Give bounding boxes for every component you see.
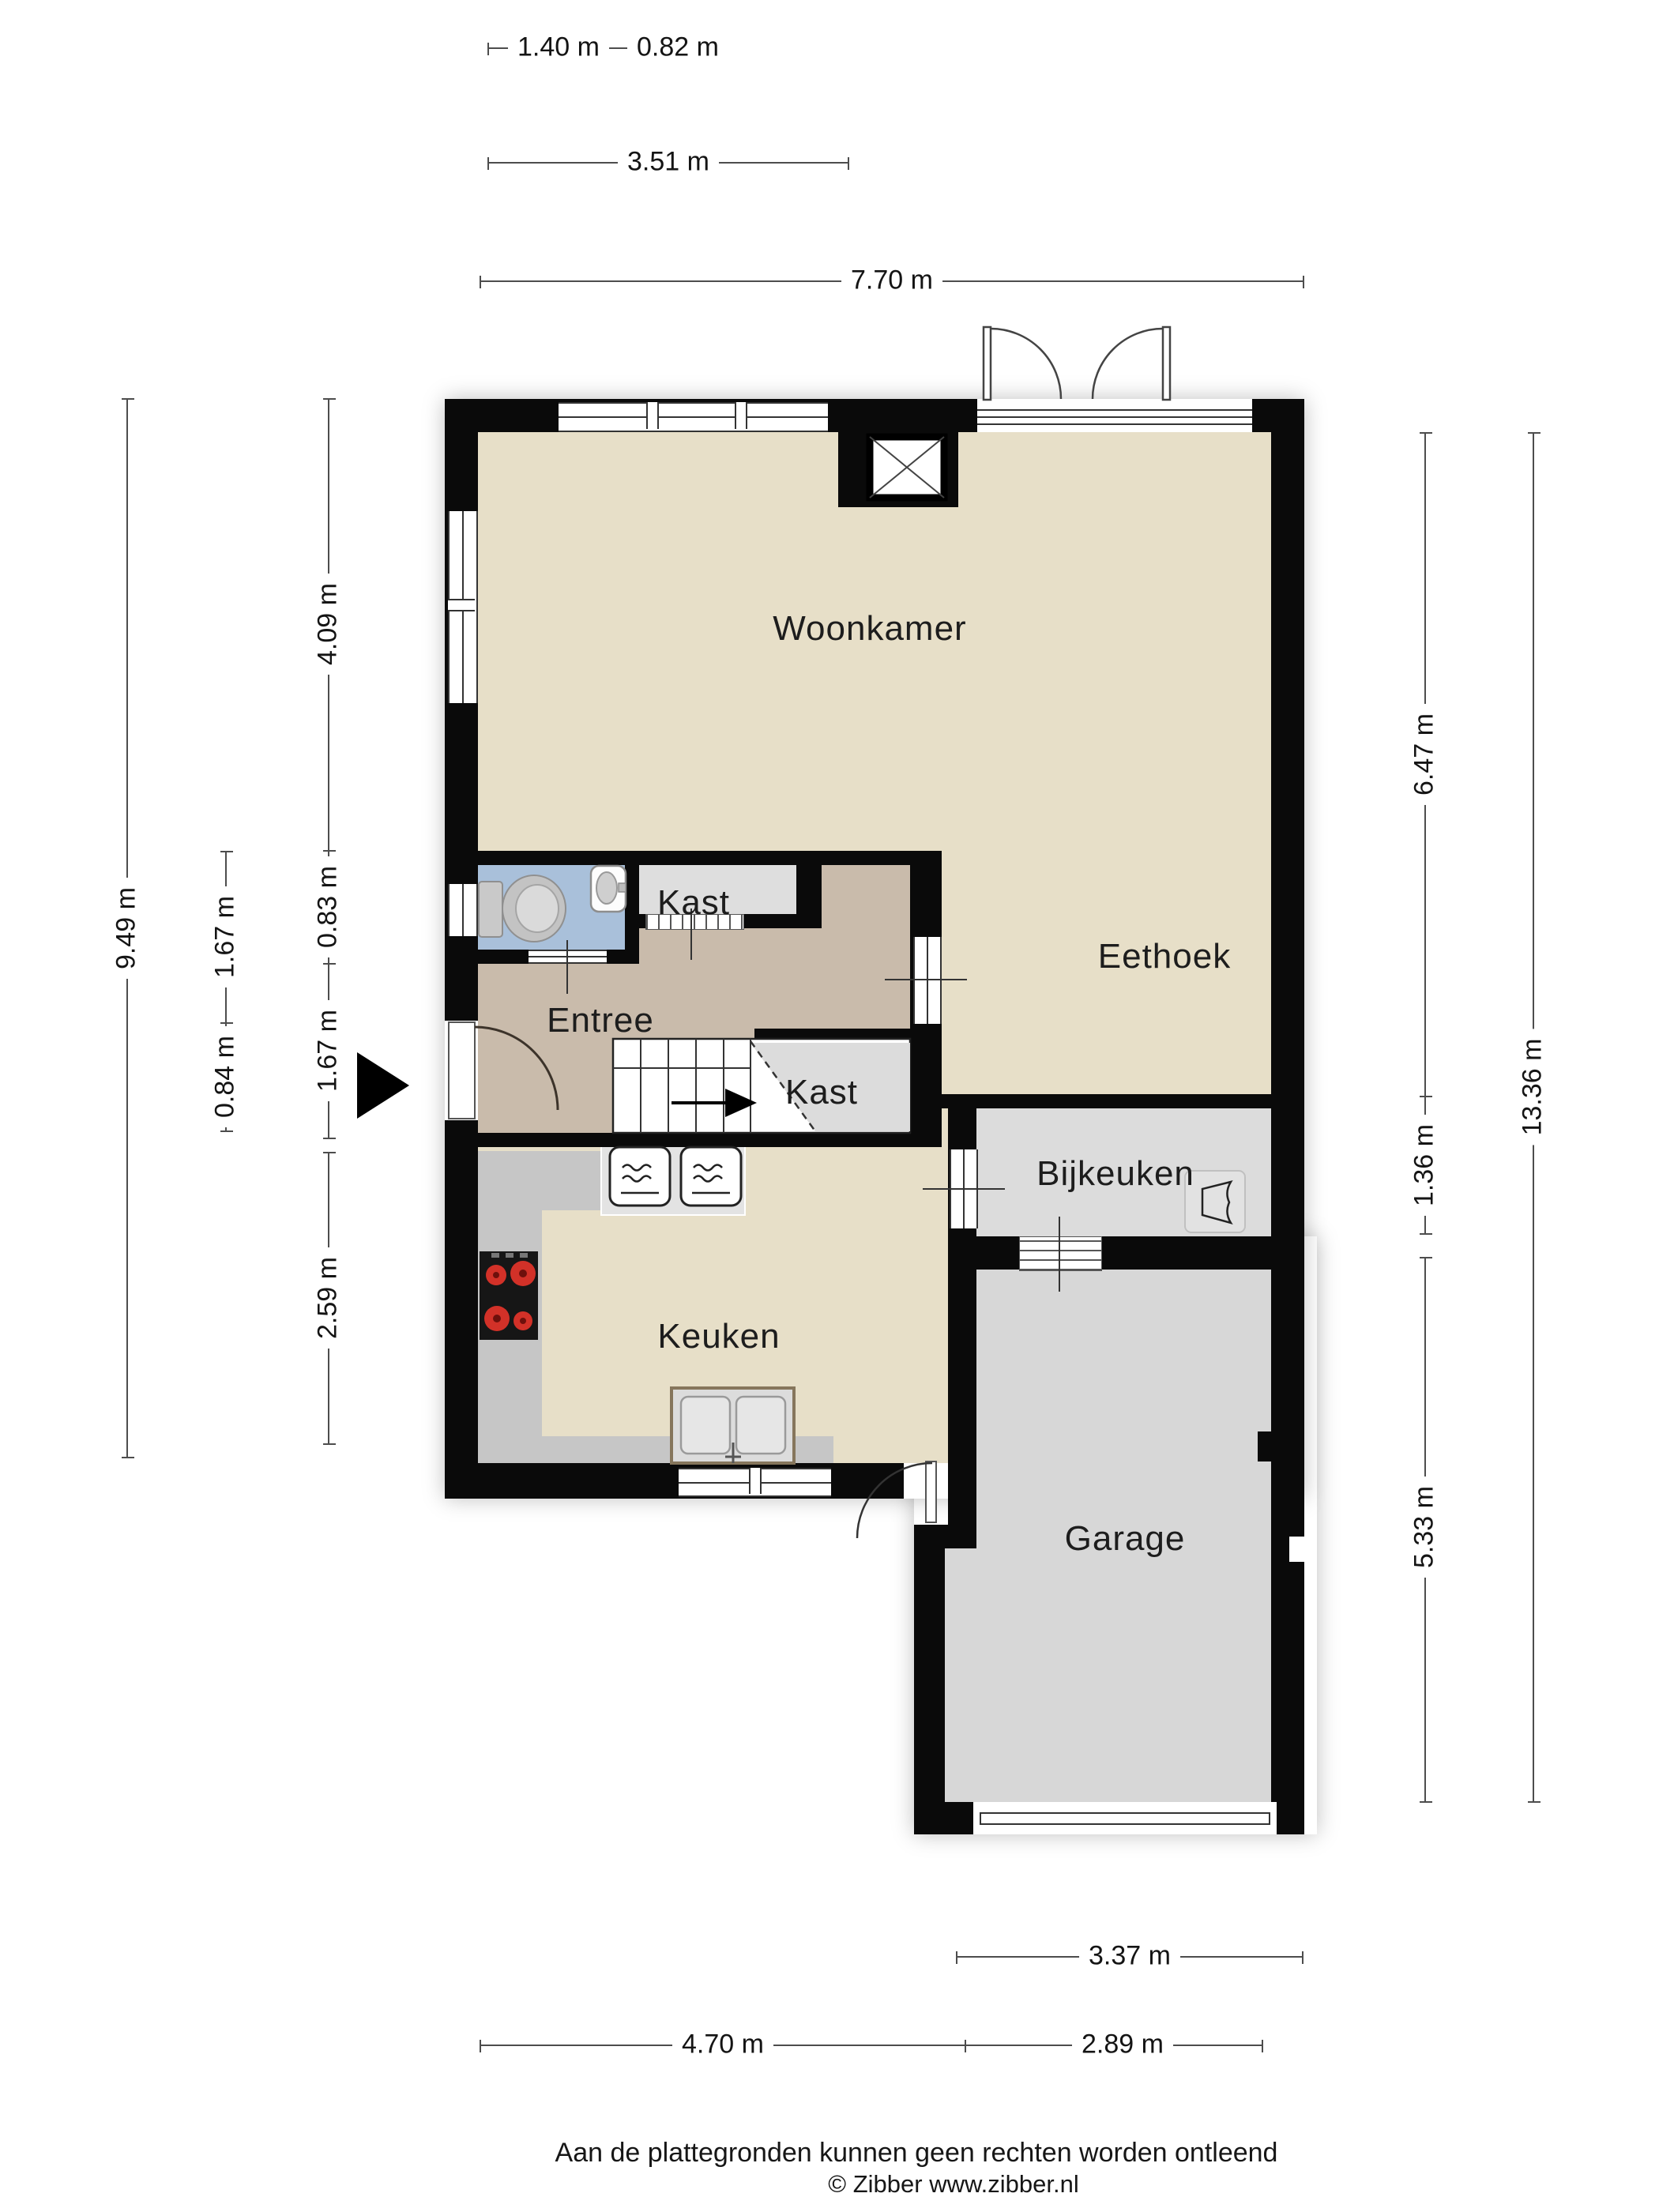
room-label-kast-trap: Kast	[785, 1073, 858, 1112]
front-door-swing-icon	[449, 1022, 558, 1119]
room-label-kast-boven: Kast	[657, 883, 730, 923]
dim-label: 3.51 m	[618, 145, 719, 179]
dim-label: 6.47 m	[1408, 704, 1442, 805]
dim-label: 4.09 m	[311, 574, 345, 675]
dim-label: 9.49 m	[110, 878, 144, 979]
copyright-text: © Zibber www.zibber.nl	[828, 2170, 1078, 2199]
kitchen-sink-icon	[671, 1388, 794, 1463]
floorplan-page: Woonkamer Eethoek Entree Kast Kast Keuke…	[0, 0, 1659, 2212]
stairs-icon	[613, 1039, 910, 1133]
dim-label: 3.37 m	[1079, 1939, 1180, 1973]
dim-label: 4.70 m	[672, 2028, 773, 2062]
disclaimer-text: Aan de plattegronden kunnen geen rechten…	[555, 2138, 1278, 2169]
dim-label: 7.70 m	[841, 264, 942, 298]
dim-label: 0.84 m	[209, 1026, 243, 1127]
entrance-arrow-icon	[357, 1052, 409, 1119]
dim-label: 1.36 m	[1408, 1115, 1442, 1216]
dim-label: 2.59 m	[311, 1247, 345, 1349]
dim-label: 2.89 m	[1072, 2028, 1173, 2062]
toilet-icon	[479, 875, 566, 942]
dim-label: 13.36 m	[1516, 1029, 1550, 1145]
stove-icon	[480, 1251, 538, 1340]
oven-icon	[610, 1147, 741, 1206]
french-doors-icon	[984, 327, 1170, 400]
dim-label: 5.33 m	[1408, 1477, 1442, 1578]
dim-label: 1.67 m	[209, 886, 243, 987]
washbasin-icon	[591, 866, 626, 912]
room-label-garage: Garage	[1065, 1519, 1186, 1559]
dim-label: 0.83 m	[311, 856, 345, 957]
dim-label: 1.67 m	[311, 1000, 345, 1101]
garage-side-door-icon	[857, 1461, 936, 1538]
room-label-entree: Entree	[547, 1001, 654, 1040]
room-label-keuken: Keuken	[657, 1317, 780, 1356]
room-label-eethoek: Eethoek	[1098, 937, 1231, 976]
chimney-icon	[870, 437, 944, 498]
room-label-bijkeuken: Bijkeuken	[1036, 1154, 1194, 1194]
dim-label: 1.40 m	[508, 31, 609, 65]
dim-label: 0.82 m	[627, 31, 728, 65]
room-label-woonkamer: Woonkamer	[773, 609, 966, 649]
